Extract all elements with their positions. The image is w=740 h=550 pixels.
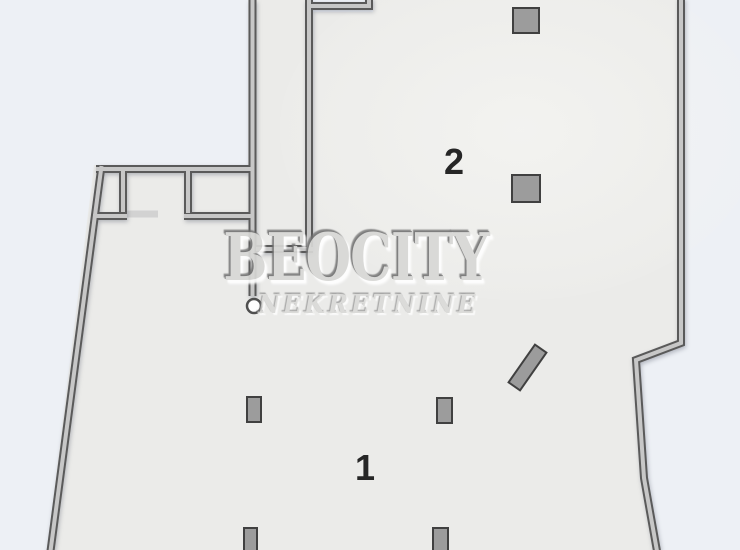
watermark-subtitle: NEKRETNINE (258, 288, 478, 321)
column-pillar (247, 397, 261, 422)
column-pillar (433, 528, 448, 550)
watermark-title: BEOCITY (222, 224, 490, 290)
floor-plan-page: { "plan": { "watermark": { "title": "BEO… (0, 0, 740, 550)
room-label-1: 1 (345, 448, 385, 488)
door-threshold (126, 211, 158, 218)
room-label-2: 2 (434, 142, 474, 182)
column-pillar (437, 398, 452, 423)
column-pillar (512, 175, 540, 202)
column-pillar (244, 528, 257, 550)
column-pillar (513, 8, 539, 33)
